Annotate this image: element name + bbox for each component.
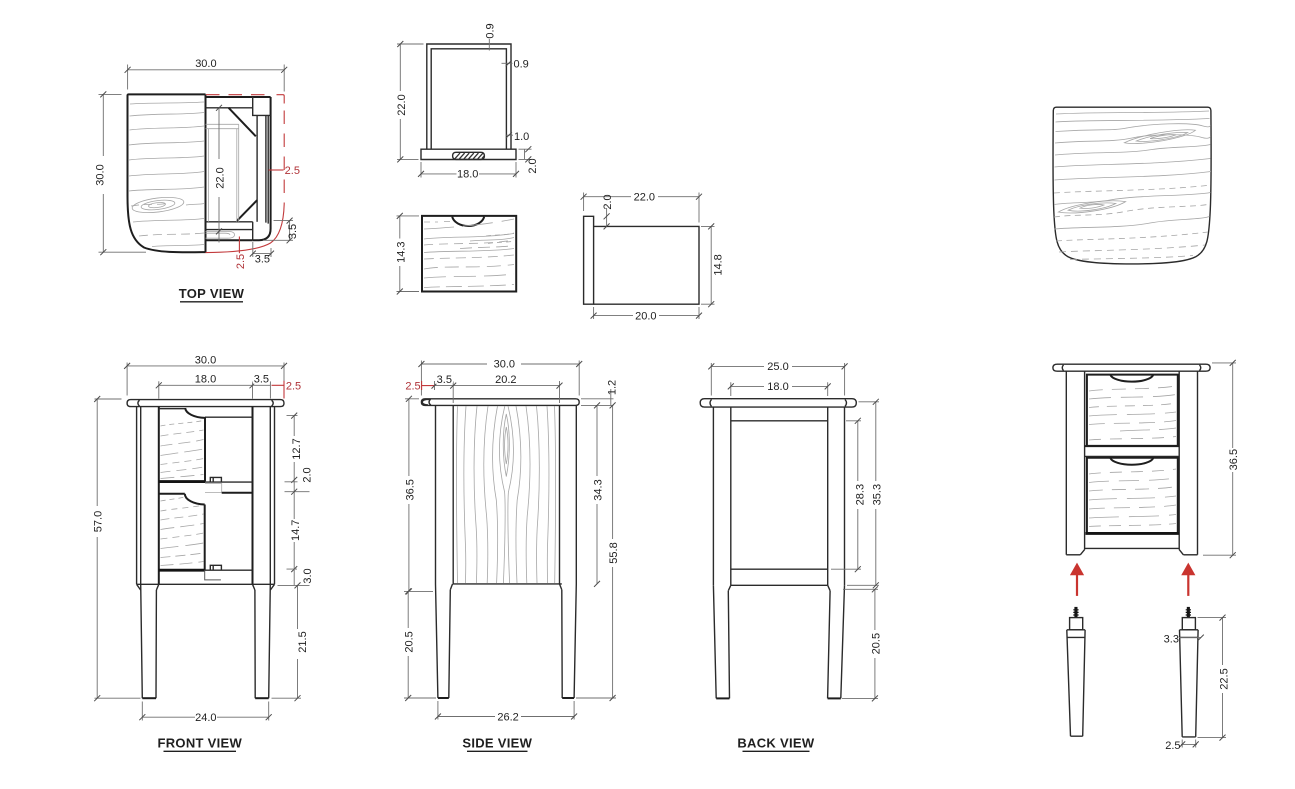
svg-text:0.9: 0.9 [514, 58, 529, 70]
svg-text:36.5: 36.5 [1228, 449, 1240, 470]
svg-text:21.5: 21.5 [297, 631, 309, 652]
svg-text:30.0: 30.0 [494, 359, 515, 371]
svg-text:2.5: 2.5 [405, 381, 420, 393]
svg-text:2.0: 2.0 [302, 467, 314, 482]
svg-text:22.0: 22.0 [634, 192, 655, 204]
svg-text:20.5: 20.5 [871, 633, 883, 654]
svg-text:12.7: 12.7 [291, 438, 303, 459]
svg-text:SIDE VIEW: SIDE VIEW [462, 736, 532, 751]
svg-text:3.3: 3.3 [1164, 633, 1179, 645]
svg-text:2.5: 2.5 [1165, 740, 1180, 752]
svg-text:1.2: 1.2 [606, 380, 618, 395]
svg-text:3.5: 3.5 [254, 374, 269, 386]
svg-text:20.5: 20.5 [404, 631, 416, 652]
svg-text:30.0: 30.0 [195, 355, 216, 367]
svg-text:BACK VIEW: BACK VIEW [737, 736, 815, 751]
svg-text:30.0: 30.0 [195, 58, 216, 70]
svg-text:3.0: 3.0 [302, 568, 314, 583]
svg-text:22.5: 22.5 [1218, 668, 1230, 689]
svg-text:26.2: 26.2 [497, 711, 518, 723]
svg-text:2.0: 2.0 [527, 158, 539, 173]
svg-text:14.7: 14.7 [290, 520, 302, 541]
svg-text:3.5: 3.5 [255, 254, 270, 266]
svg-text:55.8: 55.8 [608, 542, 620, 563]
svg-text:34.3: 34.3 [593, 479, 605, 500]
svg-text:1.0: 1.0 [514, 131, 529, 143]
svg-text:2.5: 2.5 [235, 254, 247, 269]
svg-text:24.0: 24.0 [195, 712, 216, 724]
svg-text:3.5: 3.5 [287, 224, 299, 239]
svg-text:14.8: 14.8 [713, 254, 725, 275]
svg-text:36.5: 36.5 [404, 479, 416, 500]
svg-text:22.0: 22.0 [215, 167, 227, 188]
svg-text:57.0: 57.0 [93, 511, 105, 532]
svg-text:2.0: 2.0 [602, 194, 614, 209]
svg-text:35.3: 35.3 [872, 484, 884, 505]
svg-text:TOP VIEW: TOP VIEW [179, 286, 245, 301]
svg-text:3.5: 3.5 [437, 374, 452, 386]
svg-text:18.0: 18.0 [195, 374, 216, 386]
svg-text:2.5: 2.5 [286, 380, 301, 392]
svg-text:25.0: 25.0 [767, 361, 788, 373]
svg-text:FRONT VIEW: FRONT VIEW [157, 736, 242, 751]
svg-text:18.0: 18.0 [457, 169, 478, 181]
svg-text:20.2: 20.2 [495, 374, 516, 386]
svg-text:30.0: 30.0 [95, 164, 107, 185]
svg-text:20.0: 20.0 [635, 310, 656, 322]
svg-text:14.3: 14.3 [395, 241, 407, 262]
svg-text:28.3: 28.3 [854, 484, 866, 505]
svg-text:22.0: 22.0 [396, 94, 408, 115]
svg-text:2.5: 2.5 [285, 165, 300, 177]
svg-text:0.9: 0.9 [485, 23, 497, 38]
svg-text:18.0: 18.0 [767, 381, 788, 393]
